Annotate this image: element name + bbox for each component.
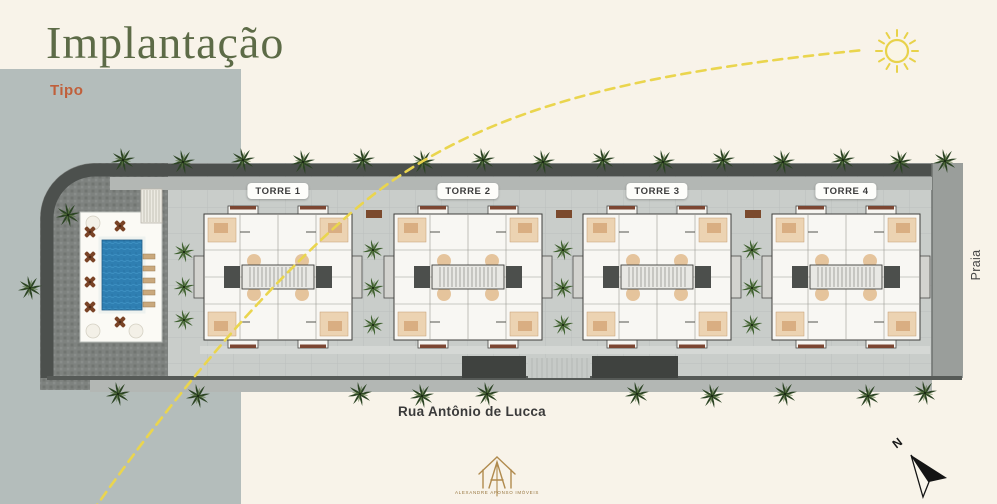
- page-subtitle: Tipo: [50, 82, 83, 99]
- sun-icon: [876, 30, 918, 72]
- lounger: [143, 302, 155, 307]
- lounger: [143, 290, 155, 295]
- lounger: [143, 254, 155, 259]
- daybed: [129, 324, 143, 338]
- tower-2-label: TORRE 2: [437, 183, 498, 199]
- logo-caption: ALEXANDRE AFONSO IMÓVEIS: [432, 490, 562, 495]
- tower-1-label: TORRE 1: [247, 183, 308, 199]
- planter: [556, 210, 572, 218]
- garage-entrance: [592, 356, 678, 378]
- planter: [745, 210, 761, 218]
- lounger: [143, 266, 155, 271]
- tower-2-floorplan: [384, 206, 552, 348]
- page-title: Implantação: [46, 18, 284, 69]
- planter: [366, 210, 382, 218]
- tower-1-floorplan: [194, 206, 362, 348]
- tower-3-label: TORRE 3: [626, 183, 687, 199]
- lounger: [143, 278, 155, 283]
- pool-deck: [80, 189, 162, 342]
- street-label-right: Praia: [969, 241, 983, 289]
- tower-4-floorplan: [762, 206, 930, 348]
- daybed: [86, 324, 100, 338]
- swimming-pool: [102, 240, 142, 310]
- right-road: [932, 163, 963, 378]
- north-arrow-icon: [911, 455, 947, 497]
- tower-4-label: TORRE 4: [815, 183, 876, 199]
- site-plan-illustration: [0, 0, 997, 504]
- street-label-bottom: Rua Antônio de Lucca: [352, 404, 592, 419]
- garage-entrance: [462, 356, 526, 378]
- tower-3-floorplan: [573, 206, 741, 348]
- page: Implantação Tipo TORRE 1 TORRE 2 TORRE 3…: [0, 0, 997, 504]
